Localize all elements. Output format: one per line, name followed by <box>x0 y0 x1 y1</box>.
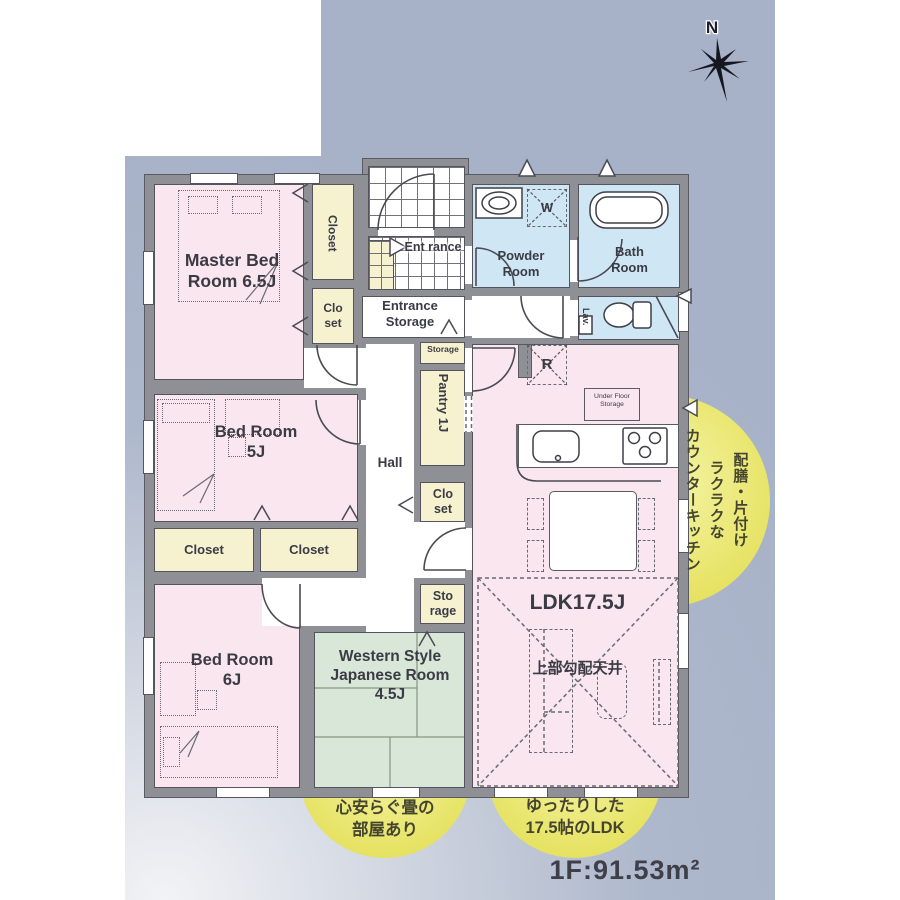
label-bedroom-6j: Bed Room 6J <box>182 650 282 690</box>
label-closet-bed5-left: Closet <box>174 542 234 558</box>
label-master-bedroom: Master Bed Room 6.5J <box>172 250 292 293</box>
pillow <box>232 196 262 214</box>
window <box>143 420 154 474</box>
pillow <box>162 403 210 423</box>
window <box>143 251 154 305</box>
label-entrance-storage: Entrance Storage <box>372 298 448 330</box>
door-gap-lav <box>570 300 578 336</box>
hall-vestibule <box>304 348 366 388</box>
label-sloped-ceiling: 上部勾配天井 <box>500 660 655 678</box>
label-lavatory: Lav. <box>580 297 591 337</box>
label-under-floor-storage: Under Floor Storage <box>590 393 634 410</box>
door-notch-bed6 <box>262 584 300 626</box>
door-gap-bath <box>570 240 578 282</box>
label-bedroom-5j: Bed Room 5J <box>206 422 306 462</box>
window <box>274 173 320 184</box>
compass-north-label: N <box>706 18 718 37</box>
door-gap-entrance <box>378 228 434 236</box>
window <box>678 613 689 669</box>
callout-kitchen-text: カウンターキッチン ラクラクな 配膳・片付け <box>682 410 749 590</box>
door-gap-bed5 <box>358 400 366 445</box>
door-gap-dining <box>465 528 472 570</box>
callout-kitchen-col-right: 配膳・片付け <box>730 452 750 548</box>
label-hall: Hall <box>364 455 416 471</box>
label-closet-hall: Clo set <box>425 487 461 518</box>
dining-chair <box>527 540 544 572</box>
room-lavatory <box>578 296 680 340</box>
label-storage-kitchen: Storage <box>426 344 460 354</box>
callout-kitchen-col-left: カウンターキッチン <box>682 428 702 572</box>
door-gap-ldk <box>465 348 472 392</box>
compass: N <box>660 5 780 135</box>
dining-chair <box>527 498 544 530</box>
door-gap-powder <box>465 246 472 284</box>
label-refrigerator: R <box>536 356 558 374</box>
window <box>143 637 154 695</box>
chair <box>197 690 217 710</box>
window <box>216 787 270 798</box>
label-washing-machine: W <box>536 200 558 216</box>
label-pantry: Pantry 1J <box>435 368 451 438</box>
label-storage-hall: Sto rage <box>424 589 462 620</box>
callout-tatami-line1: 心安らぐ畳の <box>310 798 460 820</box>
dining-chair <box>638 498 655 530</box>
kitchen-counter <box>518 424 679 468</box>
tv-board <box>653 659 671 725</box>
label-ldk: LDK17.5J <box>500 590 655 616</box>
hall-to-dining <box>414 522 465 578</box>
callout-ldk-line2: 17.5帖のLDK <box>495 818 655 840</box>
window <box>190 173 238 184</box>
compass-star <box>688 38 749 102</box>
room-entrance-porch <box>368 166 465 228</box>
label-closet-bed5-right: Closet <box>279 542 339 558</box>
callout-ldk-line1: ゆったりした <box>495 796 655 818</box>
callout-kitchen-col-middle: ラクラクな <box>706 460 726 540</box>
label-closet-master-large: Closet <box>325 202 340 264</box>
dining-chair <box>638 540 655 572</box>
hall-washroom <box>472 296 570 338</box>
floor-plan <box>0 0 900 900</box>
pillow <box>163 737 180 767</box>
label-powder-room: Powder Room <box>490 248 552 280</box>
window <box>678 292 689 332</box>
dining-table <box>549 491 637 571</box>
door-gap-washhall <box>465 300 472 336</box>
floor-area-label: 1F:91.53m² <box>535 855 715 886</box>
label-japanese-room: Western Style Japanese Room 4.5J <box>330 648 450 705</box>
pillow <box>188 196 218 214</box>
label-entrance: Ent rance <box>404 240 462 255</box>
callout-tatami-line2: 部屋あり <box>310 820 460 842</box>
callout-ldk-text: ゆったりした 17.5帖のLDK <box>495 796 655 840</box>
label-closet-master-small: Clo set <box>315 301 351 330</box>
pantry-passthrough <box>464 396 473 432</box>
shoe-cabinet <box>368 240 394 290</box>
sofa <box>529 629 573 753</box>
callout-tatami-text: 心安らぐ畳の 部屋あり <box>310 798 460 842</box>
label-bath-room: Bath Room <box>602 244 657 276</box>
window <box>372 787 420 798</box>
